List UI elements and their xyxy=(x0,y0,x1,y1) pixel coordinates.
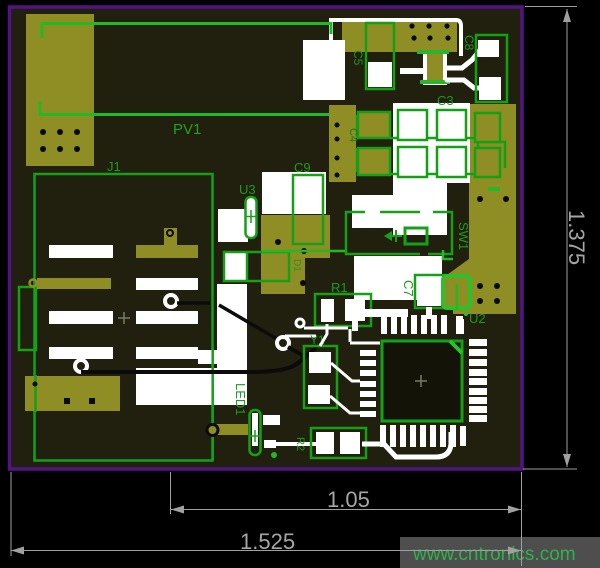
svg-text:R2: R2 xyxy=(294,437,306,451)
svg-text:C5: C5 xyxy=(351,50,365,66)
svg-text:C9: C9 xyxy=(294,160,311,175)
svg-text:C8: C8 xyxy=(462,35,476,51)
svg-text:PV1: PV1 xyxy=(173,121,201,138)
svg-text:1.525: 1.525 xyxy=(240,529,295,554)
svg-text:J1: J1 xyxy=(107,159,121,174)
svg-text:C4: C4 xyxy=(347,128,359,142)
svg-text:R1: R1 xyxy=(331,280,348,295)
svg-text:U3: U3 xyxy=(239,182,256,197)
svg-text:LED1: LED1 xyxy=(233,383,248,416)
svg-text:D1: D1 xyxy=(291,259,302,272)
svg-text:U2: U2 xyxy=(469,311,486,326)
svg-text:SW1: SW1 xyxy=(456,222,471,250)
svg-text:1.05: 1.05 xyxy=(327,487,370,512)
svg-text:www.cntronics.com: www.cntronics.com xyxy=(412,544,576,565)
svg-text:C7: C7 xyxy=(401,280,416,297)
svg-text:1.375: 1.375 xyxy=(564,210,589,265)
svg-text:C3: C3 xyxy=(437,93,454,108)
